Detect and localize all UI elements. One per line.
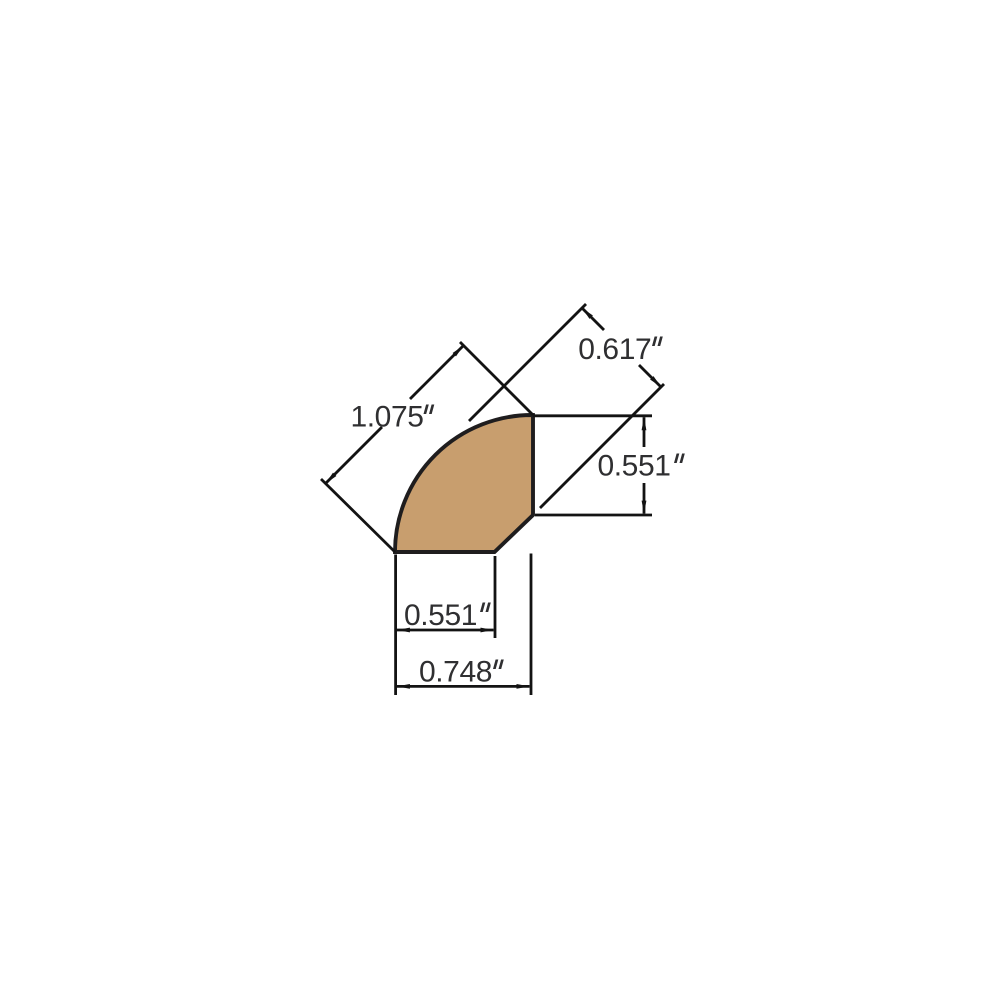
svg-text:0.551: 0.551	[597, 450, 670, 483]
svg-text:0.617: 0.617	[578, 333, 651, 366]
svg-text:0.748: 0.748	[419, 656, 492, 689]
svg-text:1.075: 1.075	[350, 401, 423, 434]
svg-text:0.551: 0.551	[404, 599, 477, 632]
